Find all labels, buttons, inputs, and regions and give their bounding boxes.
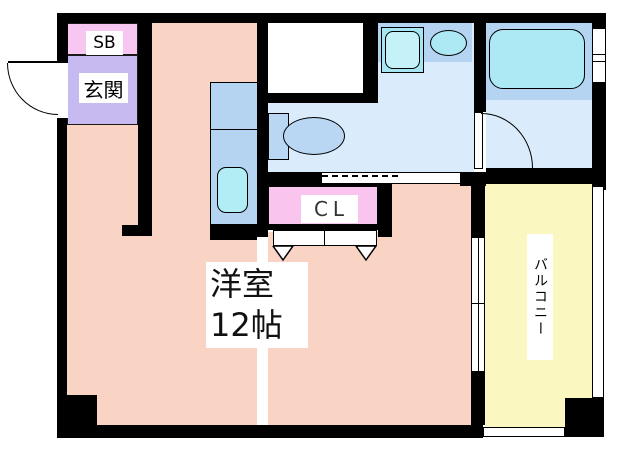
- service-box-wall-bottom: [257, 93, 378, 103]
- closet-door-panel: [324, 230, 377, 246]
- closet-door-fold-marks: [270, 246, 380, 262]
- counter-divider-line: [211, 129, 257, 130]
- entrance-label: 玄関: [79, 73, 128, 103]
- washroom-opening-dashed-line: [322, 175, 398, 177]
- room-name: 洋室: [210, 264, 274, 305]
- bathroom-window: [592, 28, 606, 83]
- western-room-floor: [138, 236, 152, 425]
- outer-wall-left-upper: [57, 13, 68, 63]
- balcony-railing-right: [592, 186, 604, 398]
- floor-plan: SB 玄関 CL 洋室 12帖 バルコニー: [0, 0, 619, 453]
- outer-wall-left: [57, 118, 67, 398]
- room-label: 洋室 12帖: [206, 262, 308, 348]
- washing-machine: [385, 31, 420, 69]
- bathroom-partition-wall: [474, 13, 486, 112]
- washroom-threshold: [322, 172, 460, 184]
- closet-door-panel: [273, 230, 325, 246]
- fold-triangle-icon: [356, 246, 376, 260]
- service-box-area: [268, 23, 363, 93]
- closet-label: CL: [301, 195, 358, 223]
- balcony-sliding-window: [471, 237, 485, 372]
- window-tick: [593, 54, 605, 55]
- room-size: 12帖: [210, 305, 283, 346]
- bathroom-wall-bottom: [486, 168, 604, 184]
- service-box-wall-right: [363, 13, 378, 103]
- entrance-wall-endcap: [122, 225, 138, 236]
- washbasin: [430, 30, 467, 56]
- kitchen-sink: [217, 167, 248, 213]
- entrance-partition-wall: [138, 13, 152, 236]
- window-meeting-rail: [472, 303, 484, 304]
- shoe-box-label: SB: [86, 31, 123, 55]
- corner-pillar-bottom-left: [57, 395, 97, 427]
- entrance-door-swing-arc: [7, 63, 58, 115]
- fold-triangle-icon: [273, 246, 293, 260]
- balcony-railing-bottom: [483, 427, 565, 437]
- balcony-wall-upper: [471, 172, 485, 237]
- bathtub: [489, 29, 585, 89]
- western-room-floor: [67, 125, 138, 425]
- outer-wall-bottom: [57, 425, 483, 438]
- washing-machine-pan: [381, 27, 424, 73]
- kitchen-partition-wall: [257, 13, 268, 237]
- corner-pillar-bottom-right: [565, 398, 604, 437]
- western-room-floor: [392, 184, 471, 237]
- balcony-wall-lower: [471, 372, 485, 425]
- window-glass-line: [478, 238, 479, 371]
- entrance-doorway: [57, 63, 68, 118]
- kitchen-counter-end-wall: [210, 225, 257, 240]
- balcony-label: バルコニー: [527, 234, 553, 360]
- window-tick: [593, 61, 605, 62]
- toilet-bowl: [283, 117, 345, 155]
